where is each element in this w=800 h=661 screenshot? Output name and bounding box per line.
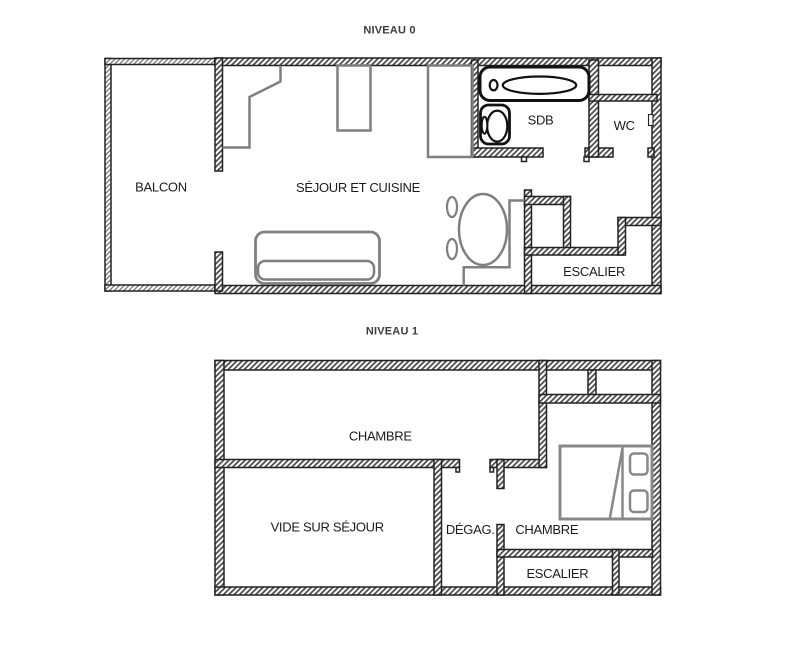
svg-text:DÉGAG.: DÉGAG.	[446, 522, 495, 537]
svg-text:WC: WC	[614, 118, 635, 133]
svg-text:SDB: SDB	[528, 113, 554, 128]
svg-text:NIVEAU 1: NIVEAU 1	[366, 326, 418, 338]
svg-text:ESCALIER: ESCALIER	[563, 264, 625, 279]
svg-text:CHAMBRE: CHAMBRE	[515, 522, 579, 537]
svg-text:CHAMBRE: CHAMBRE	[349, 429, 413, 444]
svg-text:ESCALIER: ESCALIER	[526, 566, 588, 581]
svg-text:SÉJOUR ET CUISINE: SÉJOUR ET CUISINE	[296, 180, 421, 195]
svg-text:VIDE SUR SÉJOUR: VIDE SUR SÉJOUR	[271, 520, 384, 535]
svg-text:NIVEAU 0: NIVEAU 0	[363, 25, 415, 37]
svg-text:BALCON: BALCON	[135, 180, 187, 195]
